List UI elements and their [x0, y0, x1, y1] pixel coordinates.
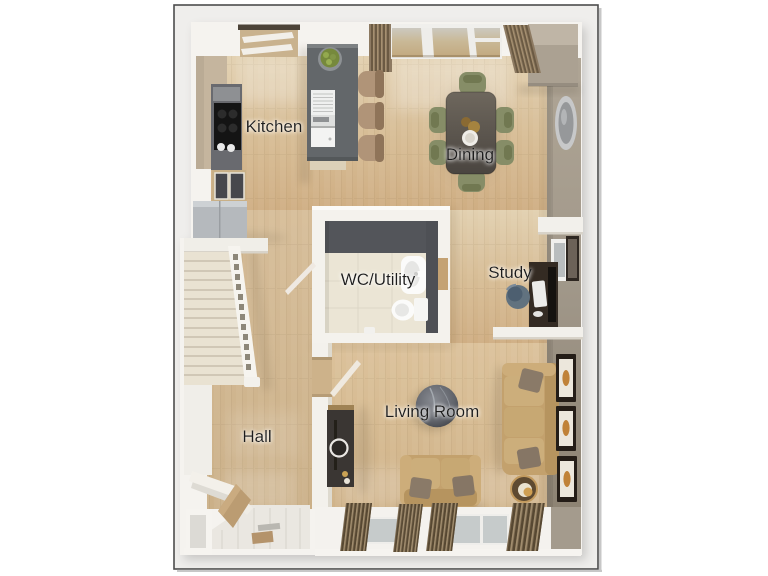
svg-text:Hall: Hall	[242, 427, 271, 446]
svg-text:Living Room: Living Room	[385, 402, 480, 421]
svg-text:Dining: Dining	[446, 145, 494, 164]
svg-text:Kitchen: Kitchen	[246, 117, 303, 136]
svg-text:WC/Utility: WC/Utility	[341, 270, 416, 289]
svg-text:Study: Study	[488, 263, 532, 282]
